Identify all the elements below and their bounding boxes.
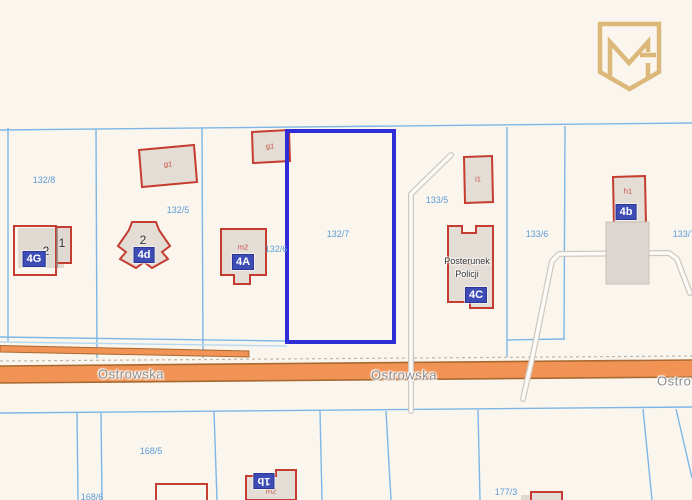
building-4b-annex xyxy=(606,222,649,284)
parcel-label-132-5: 132/5 xyxy=(167,205,190,215)
address-chip-4g: 4G xyxy=(23,251,46,267)
police-caption-line2: Policji xyxy=(444,268,490,281)
address-chip-4b: 4b xyxy=(616,204,637,220)
road-label-ostrowska-right: Ostrowska xyxy=(657,374,692,389)
parcel-boundary-lines xyxy=(0,123,692,500)
unit-number-1-4g: 1 xyxy=(59,236,66,250)
map-geometry-layer xyxy=(0,0,692,500)
parcel-label-133-7: 133/7 xyxy=(673,229,692,239)
police-caption-line1: Posterunek xyxy=(444,255,490,268)
building-code-g1-large: g1 xyxy=(164,160,172,169)
building-bottom-right xyxy=(531,492,562,500)
road-fork-strip xyxy=(0,346,249,358)
building-code-h1: h1 xyxy=(624,187,632,196)
brand-logo-icon xyxy=(600,24,659,89)
parcel-label-133-6: 133/6 xyxy=(526,229,549,239)
parcel-label-168-5: 168/5 xyxy=(140,446,163,456)
building-code-i1: i1 xyxy=(475,175,481,184)
parcel-label-168-6: 168/6 xyxy=(81,492,104,500)
building-bottom-left xyxy=(156,484,207,500)
building-code-m2: m2 xyxy=(238,243,248,252)
building-code-g1-small: g1 xyxy=(266,142,274,151)
road-label-ostrowska-left: Ostrowska xyxy=(98,367,164,382)
parcel-label-133-5: 133/5 xyxy=(426,195,449,205)
cadastral-map-canvas[interactable]: 132/8 132/5 132/6 132/7 133/5 133/6 133/… xyxy=(0,0,692,500)
parcel-label-132-6: 132/6 xyxy=(265,244,288,254)
parcel-label-177-3: 177/3 xyxy=(495,487,518,497)
parcel-label-132-8: 132/8 xyxy=(33,175,56,185)
address-chip-1b: 1b xyxy=(254,473,275,489)
unit-number-2-4d: 2 xyxy=(140,233,147,247)
parcel-label-132-7: 132/7 xyxy=(327,229,350,239)
address-chip-4d: 4d xyxy=(134,247,155,263)
buildings-layer xyxy=(14,130,649,500)
road-label-ostrowska-center: Ostrowska xyxy=(371,368,437,383)
address-chip-4c: 4C xyxy=(465,287,487,303)
police-station-caption: Posterunek Policji xyxy=(444,255,490,281)
address-chip-4a: 4A xyxy=(232,254,254,270)
